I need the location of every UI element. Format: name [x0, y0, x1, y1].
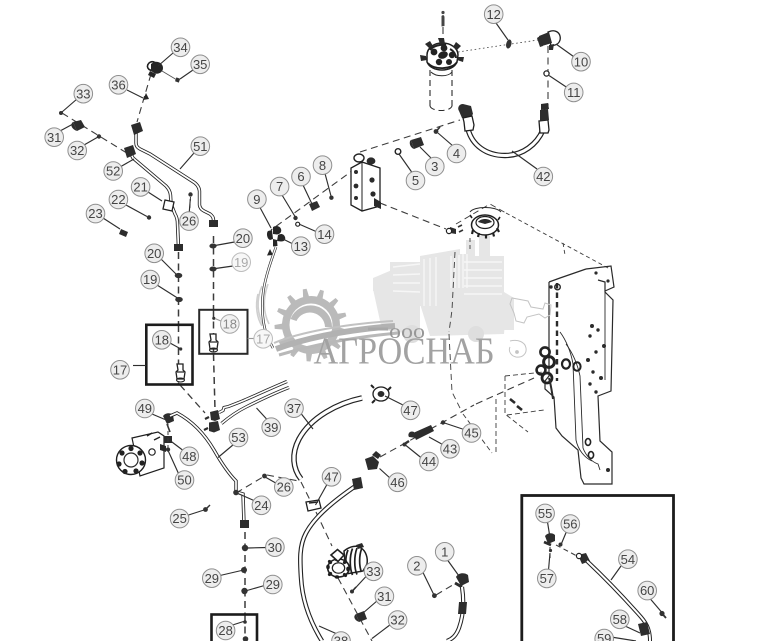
svg-text:9: 9 — [253, 192, 260, 207]
svg-text:14: 14 — [317, 227, 331, 242]
svg-text:19: 19 — [143, 272, 157, 287]
svg-text:38: 38 — [334, 634, 348, 641]
svg-text:42: 42 — [536, 169, 550, 184]
svg-text:50: 50 — [177, 473, 191, 488]
svg-text:36: 36 — [111, 77, 125, 92]
svg-text:11: 11 — [567, 85, 581, 100]
svg-text:17: 17 — [256, 331, 270, 346]
svg-text:51: 51 — [193, 139, 207, 154]
svg-text:52: 52 — [106, 164, 120, 179]
svg-text:АГРОСНАБ: АГРОСНАБ — [314, 331, 495, 373]
svg-text:31: 31 — [377, 589, 391, 604]
svg-text:4: 4 — [453, 146, 460, 161]
svg-text:47: 47 — [324, 469, 338, 484]
svg-text:33: 33 — [76, 86, 90, 101]
svg-text:5: 5 — [412, 173, 419, 188]
svg-text:24: 24 — [254, 498, 268, 513]
svg-text:3: 3 — [431, 159, 438, 174]
svg-text:47: 47 — [403, 403, 417, 418]
svg-text:60: 60 — [640, 583, 654, 598]
svg-text:18: 18 — [223, 317, 237, 332]
svg-text:56: 56 — [563, 517, 577, 532]
svg-text:2: 2 — [413, 558, 420, 573]
svg-text:55: 55 — [538, 506, 552, 521]
svg-text:21: 21 — [133, 180, 147, 195]
svg-text:58: 58 — [613, 612, 627, 627]
svg-text:26: 26 — [277, 480, 291, 495]
svg-text:34: 34 — [173, 40, 187, 55]
svg-text:25: 25 — [172, 511, 186, 526]
svg-text:46: 46 — [390, 475, 404, 490]
svg-text:35: 35 — [193, 57, 207, 72]
svg-text:39: 39 — [264, 420, 278, 435]
svg-text:31: 31 — [47, 130, 61, 145]
svg-text:28: 28 — [218, 623, 232, 638]
svg-text:48: 48 — [182, 449, 196, 464]
svg-text:12: 12 — [486, 7, 500, 22]
svg-text:49: 49 — [138, 401, 152, 416]
svg-text:20: 20 — [236, 231, 250, 246]
svg-text:18: 18 — [155, 332, 169, 347]
svg-text:44: 44 — [422, 454, 436, 469]
svg-text:20: 20 — [147, 246, 161, 261]
svg-text:1: 1 — [441, 544, 448, 559]
svg-text:53: 53 — [231, 430, 245, 445]
svg-text:45: 45 — [464, 426, 478, 441]
svg-text:33: 33 — [366, 564, 380, 579]
svg-text:32: 32 — [70, 143, 84, 158]
svg-text:59: 59 — [597, 631, 611, 641]
svg-text:8: 8 — [319, 158, 326, 173]
svg-text:7: 7 — [276, 179, 283, 194]
svg-text:43: 43 — [443, 441, 457, 456]
svg-text:54: 54 — [621, 552, 635, 567]
svg-text:23: 23 — [88, 206, 102, 221]
svg-text:26: 26 — [182, 214, 196, 229]
svg-text:17: 17 — [113, 362, 127, 377]
svg-text:6: 6 — [297, 169, 304, 184]
svg-text:22: 22 — [111, 192, 125, 207]
svg-text:29: 29 — [266, 577, 280, 592]
svg-text:13: 13 — [294, 239, 308, 254]
svg-text:57: 57 — [540, 571, 554, 586]
svg-text:29: 29 — [205, 571, 219, 586]
svg-text:32: 32 — [390, 613, 404, 628]
svg-text:30: 30 — [268, 540, 282, 555]
svg-text:19: 19 — [234, 255, 248, 270]
svg-text:37: 37 — [287, 401, 301, 416]
svg-text:10: 10 — [574, 54, 588, 69]
